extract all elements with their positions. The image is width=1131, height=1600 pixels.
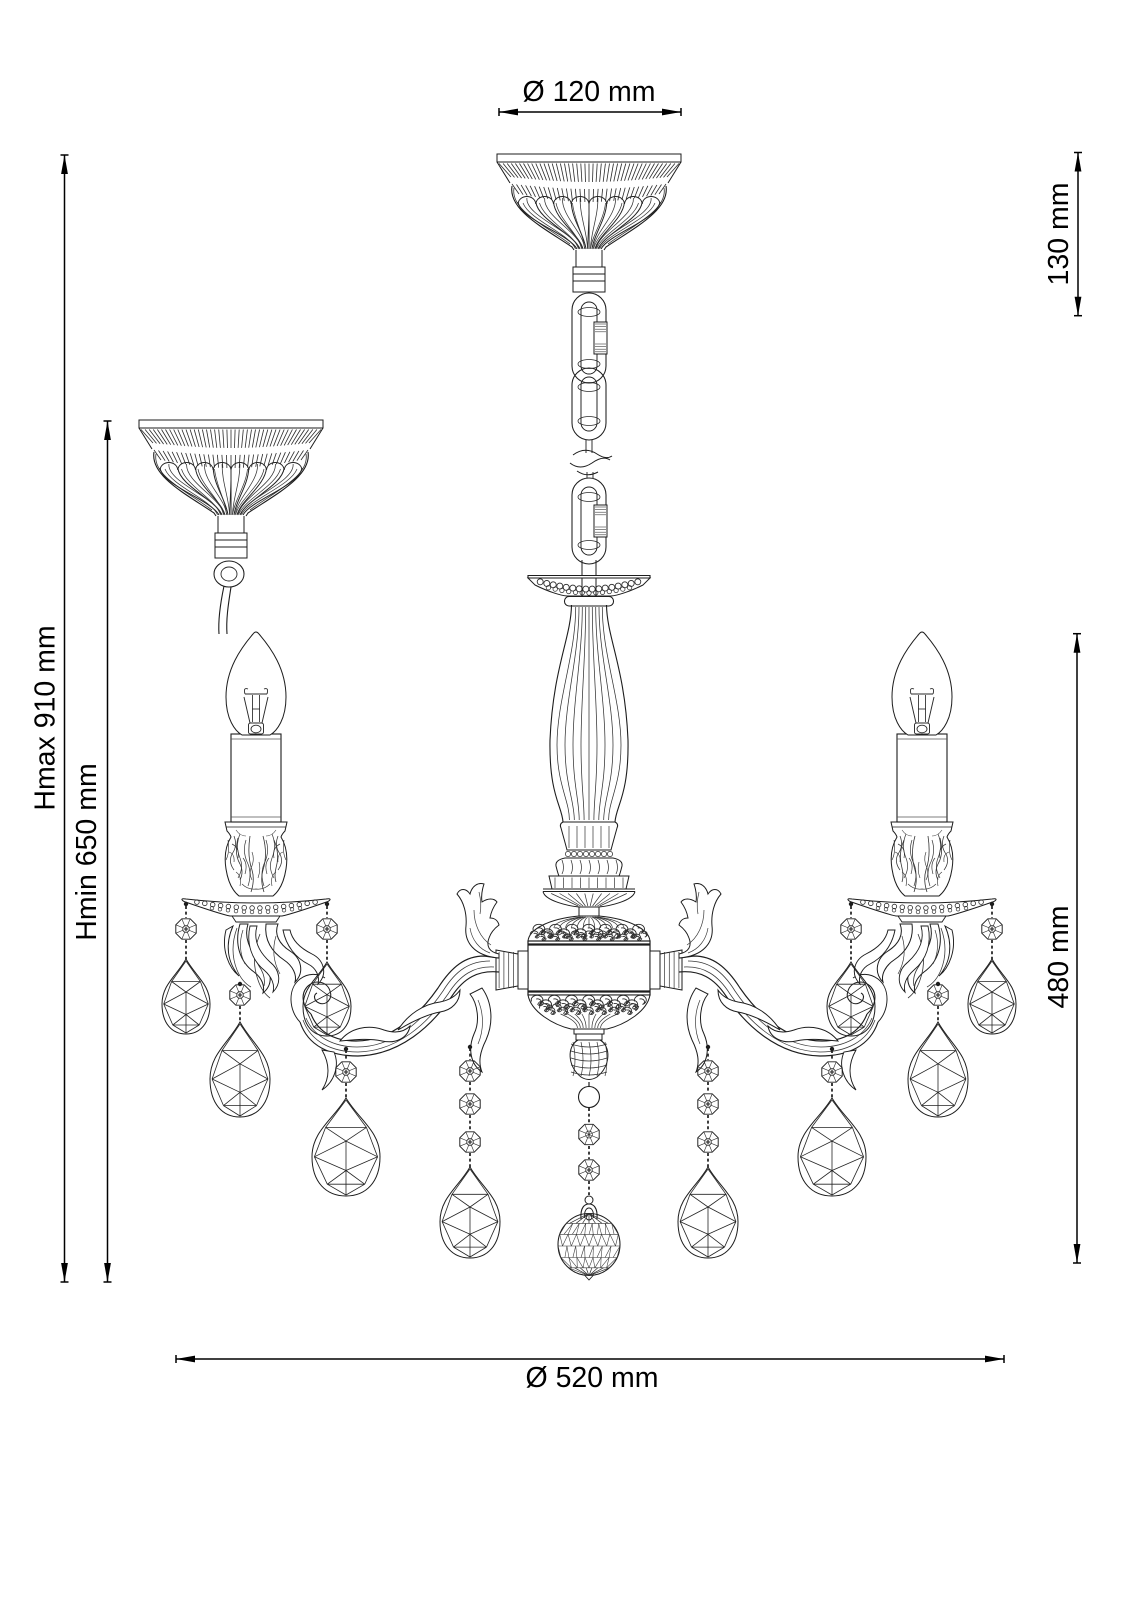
svg-text:480 mm: 480 mm (1043, 906, 1075, 1009)
svg-text:130 mm: 130 mm (1043, 183, 1075, 286)
svg-text:Hmax 910 mm: Hmax 910 mm (30, 625, 62, 810)
svg-text:Hmin 650 mm: Hmin 650 mm (71, 763, 103, 940)
svg-text:Ø 520 mm: Ø 520 mm (525, 1362, 658, 1394)
svg-text:Ø 120 mm: Ø 120 mm (522, 76, 655, 108)
